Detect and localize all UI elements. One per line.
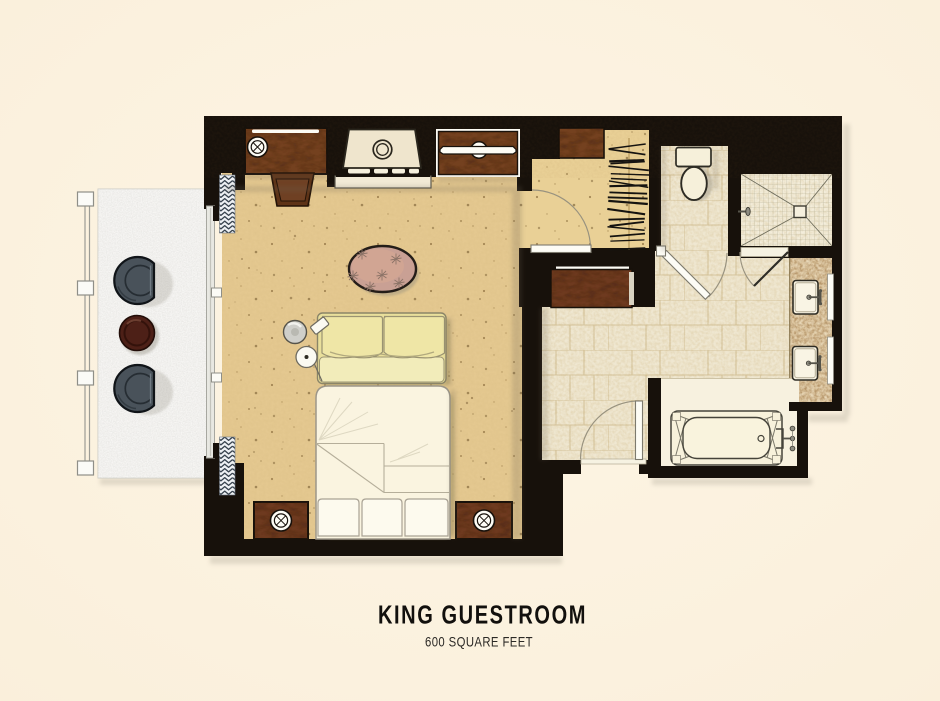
- svg-text:600 SQUARE FEET: 600 SQUARE FEET: [425, 634, 533, 650]
- svg-text:KING GUESTROOM: KING GUESTROOM: [378, 602, 587, 630]
